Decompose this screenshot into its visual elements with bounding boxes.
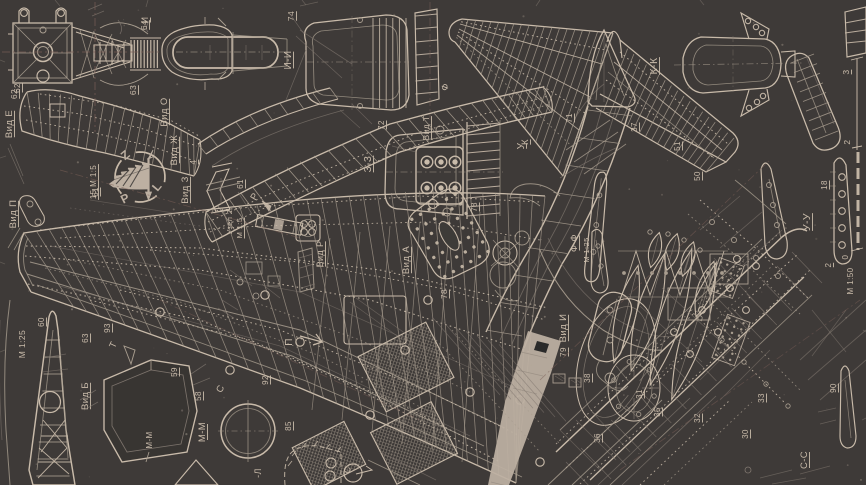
svg-text:М-М: М-М xyxy=(145,431,154,448)
svg-text:63: 63 xyxy=(81,333,90,343)
svg-text:2: 2 xyxy=(842,139,852,144)
svg-text:У-У: У-У xyxy=(801,213,813,231)
svg-text:3: 3 xyxy=(841,69,851,74)
svg-text:38: 38 xyxy=(583,373,592,383)
svg-text:Ф-Ф: Ф-Ф xyxy=(569,234,579,252)
svg-text:60: 60 xyxy=(37,317,46,327)
svg-text:90: 90 xyxy=(829,383,838,393)
svg-text:2: 2 xyxy=(824,262,833,267)
svg-text:0: 0 xyxy=(841,254,850,259)
svg-text:4: 4 xyxy=(188,159,198,164)
svg-text:59: 59 xyxy=(170,367,179,377)
svg-text:Вид А: Вид А xyxy=(401,246,412,274)
svg-text:63: 63 xyxy=(128,85,138,95)
svg-text:Вид И: Вид И xyxy=(558,314,569,343)
svg-text:62: 62 xyxy=(13,83,22,93)
svg-text:33: 33 xyxy=(757,393,766,403)
svg-text:93: 93 xyxy=(103,323,112,333)
svg-text:М-М: М-М xyxy=(197,422,208,442)
svg-text:85: 85 xyxy=(284,421,293,431)
svg-text:61: 61 xyxy=(236,179,245,189)
svg-text:15 М 1:5: 15 М 1:5 xyxy=(89,165,98,199)
svg-text:71: 71 xyxy=(565,113,574,123)
svg-text:-Л: -Л xyxy=(253,468,263,478)
svg-text:37: 37 xyxy=(630,122,639,132)
svg-text:Вид П: Вид П xyxy=(8,200,19,229)
svg-text:50: 50 xyxy=(693,171,702,181)
svg-text:Вид Е: Вид Е xyxy=(4,110,15,138)
svg-text:М 1:5: М 1:5 xyxy=(235,218,244,239)
svg-text:М 1:25: М 1:25 xyxy=(582,237,591,262)
svg-text:30: 30 xyxy=(741,429,750,439)
svg-text:51: 51 xyxy=(673,141,682,151)
svg-text:Вид З: Вид З xyxy=(180,176,191,204)
svg-text:79: 79 xyxy=(559,347,568,357)
svg-text:У: У xyxy=(516,142,527,149)
svg-text:С-С: С-С xyxy=(799,451,810,469)
svg-text:М 1:25: М 1:25 xyxy=(17,330,27,358)
svg-text:Вид Б: Вид Б xyxy=(80,382,91,410)
svg-text:М 1:50: М 1:50 xyxy=(846,267,855,294)
svg-text:31: 31 xyxy=(635,389,644,399)
svg-text:18: 18 xyxy=(820,180,829,190)
svg-text:35: 35 xyxy=(653,407,662,417)
svg-text:Узел 2: Узел 2 xyxy=(225,210,234,235)
svg-text:Вид Т: Вид Т xyxy=(421,116,431,141)
svg-text:58: 58 xyxy=(194,391,203,401)
svg-text:Вид Ж: Вид Ж xyxy=(169,135,180,166)
svg-text:К-К: К-К xyxy=(648,57,660,74)
svg-text:92: 92 xyxy=(261,375,270,385)
svg-text:78: 78 xyxy=(440,289,449,299)
svg-text:П: П xyxy=(284,338,295,346)
svg-text:И: И xyxy=(140,17,150,24)
svg-text:И-И: И-И xyxy=(283,51,294,70)
svg-text:32: 32 xyxy=(693,413,702,423)
